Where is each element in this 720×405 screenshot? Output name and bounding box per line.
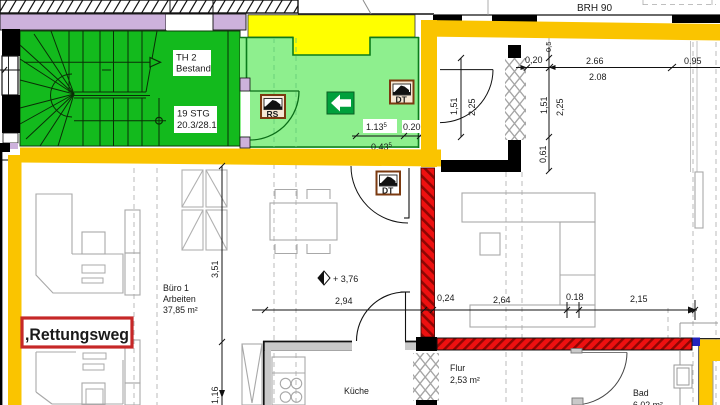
svg-text:0,61: 0,61 — [538, 145, 548, 163]
svg-text:0.18: 0.18 — [566, 292, 584, 302]
svg-text:0,20: 0,20 — [525, 55, 543, 65]
svg-text:20.3/28.1: 20.3/28.1 — [177, 120, 217, 131]
svg-text:3,51: 3,51 — [210, 260, 220, 278]
svg-text:2,64: 2,64 — [493, 295, 511, 305]
svg-text:DT: DT — [382, 186, 394, 196]
svg-text:2,53 m²: 2,53 m² — [450, 375, 480, 385]
svg-text:RS: RS — [267, 109, 279, 119]
svg-text:19 STG: 19 STG — [177, 109, 210, 120]
svg-text:1,51: 1,51 — [539, 96, 549, 114]
svg-text:37,85 m²: 37,85 m² — [163, 305, 198, 315]
svg-text:Flur: Flur — [450, 363, 465, 373]
svg-text:Küche: Küche — [344, 386, 369, 396]
svg-text:2,25: 2,25 — [555, 98, 565, 116]
svg-text:0.95: 0.95 — [684, 56, 702, 66]
svg-text:1,16: 1,16 — [210, 386, 220, 404]
svg-text:Arbeiten: Arbeiten — [163, 294, 196, 304]
svg-text:0,24: 0,24 — [437, 293, 455, 303]
svg-text:Bestand: Bestand — [176, 64, 211, 75]
svg-text:+ 3,76: + 3,76 — [333, 274, 358, 284]
svg-text:2.08: 2.08 — [589, 72, 607, 82]
svg-text:2,25: 2,25 — [467, 98, 477, 116]
svg-text:0.20: 0.20 — [403, 122, 421, 132]
svg-text:Bad: Bad — [633, 388, 649, 398]
svg-text:TH 2: TH 2 — [176, 53, 197, 64]
svg-text:Büro 1: Büro 1 — [163, 283, 189, 293]
svg-text:,Rettungsweg: ,Rettungsweg — [25, 325, 129, 344]
svg-text:1,51: 1,51 — [449, 97, 459, 115]
svg-text:BRH 90: BRH 90 — [577, 3, 612, 14]
svg-text:2,15: 2,15 — [630, 294, 648, 304]
svg-text:2.66: 2.66 — [586, 56, 604, 66]
svg-text:DT: DT — [396, 95, 408, 105]
svg-text:6,02 m²: 6,02 m² — [633, 400, 663, 405]
svg-text:2,94: 2,94 — [335, 296, 353, 306]
svg-text:0,5: 0,5 — [544, 42, 553, 52]
